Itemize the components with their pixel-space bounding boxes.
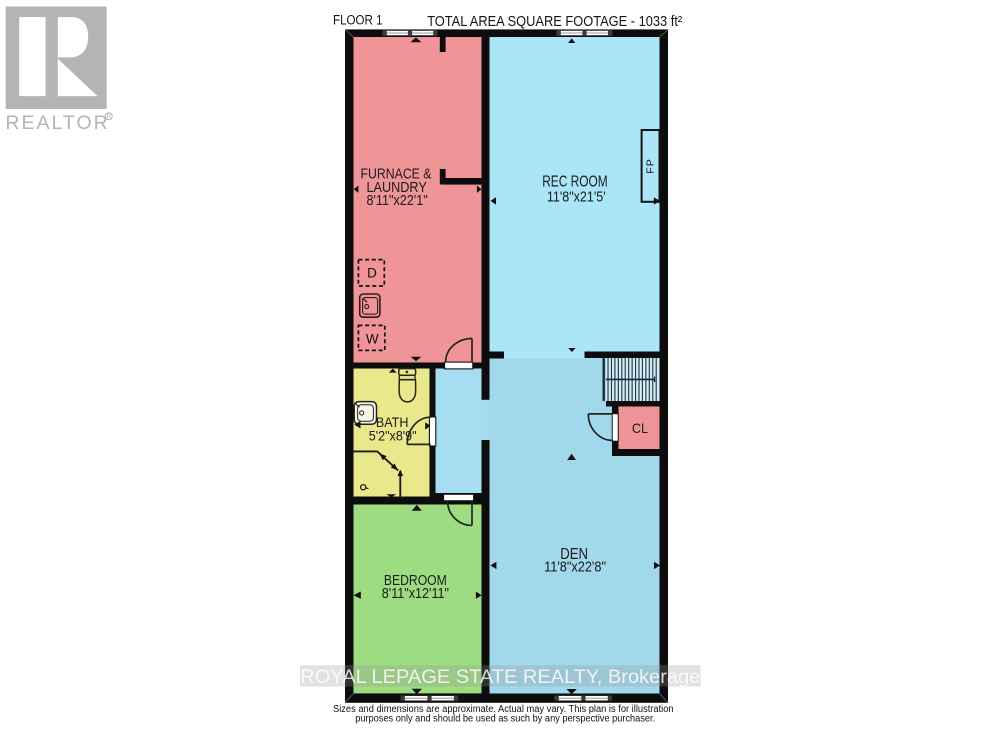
- svg-text:11'8"x21'5': 11'8"x21'5': [547, 190, 606, 206]
- svg-text:purposes only and should be us: purposes only and should be used as such…: [355, 713, 655, 724]
- svg-text:5'2"x8'9": 5'2"x8'9": [369, 429, 417, 445]
- svg-text:REALTOR: REALTOR: [5, 112, 109, 134]
- svg-text:R: R: [106, 114, 111, 121]
- svg-text:FP: FP: [645, 158, 657, 173]
- svg-text:REC ROOM: REC ROOM: [542, 174, 608, 191]
- svg-text:ROYAL LEPAGE STATE REALTY, Bro: ROYAL LEPAGE STATE REALTY, Brokerage: [300, 666, 700, 688]
- svg-text:11'8"x22'8": 11'8"x22'8": [544, 560, 606, 576]
- svg-text:8'11"x12'11": 8'11"x12'11": [382, 586, 449, 602]
- svg-text:8'11"x22'1": 8'11"x22'1": [367, 193, 428, 209]
- svg-text:CL: CL: [632, 421, 649, 436]
- svg-text:FLOOR 1: FLOOR 1: [333, 13, 383, 28]
- svg-text:W: W: [366, 332, 379, 347]
- svg-text:TOTAL AREA SQUARE FOOTAGE - 10: TOTAL AREA SQUARE FOOTAGE - 1033 ft²: [427, 14, 682, 30]
- svg-text:D: D: [367, 266, 377, 281]
